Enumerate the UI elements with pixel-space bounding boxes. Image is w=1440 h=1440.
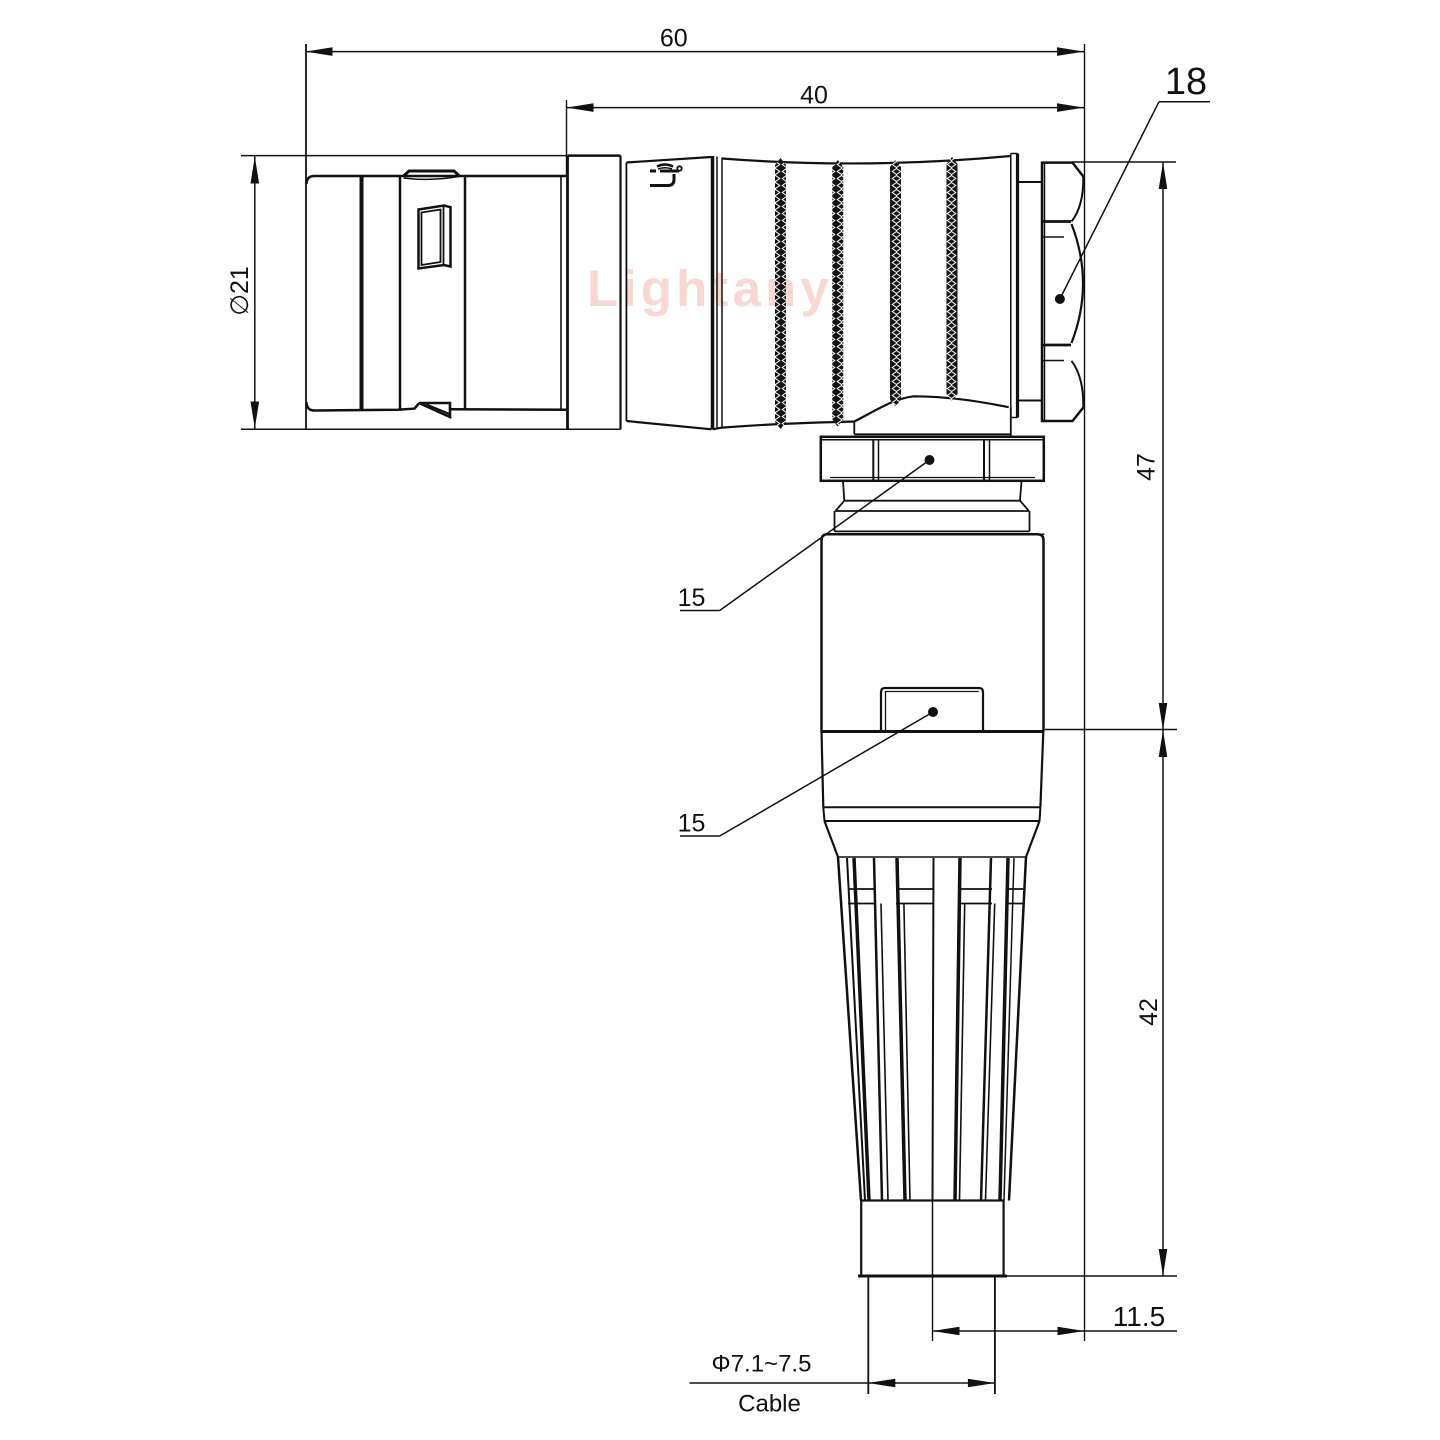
svg-text:47: 47 bbox=[1133, 453, 1161, 481]
svg-text:Cable: Cable bbox=[738, 1391, 801, 1418]
svg-text:11.5: 11.5 bbox=[1113, 1301, 1165, 1332]
svg-text:15: 15 bbox=[678, 584, 706, 612]
svg-text:40: 40 bbox=[800, 82, 828, 110]
svg-text:Lightany: Lightany bbox=[587, 260, 833, 317]
svg-text:60: 60 bbox=[660, 25, 688, 53]
svg-text:42: 42 bbox=[1135, 998, 1163, 1026]
svg-text:∅21: ∅21 bbox=[226, 266, 254, 316]
svg-text:Φ7.1~7.5: Φ7.1~7.5 bbox=[712, 1351, 812, 1378]
svg-text:15: 15 bbox=[678, 810, 706, 838]
svg-text:18: 18 bbox=[1165, 61, 1207, 103]
